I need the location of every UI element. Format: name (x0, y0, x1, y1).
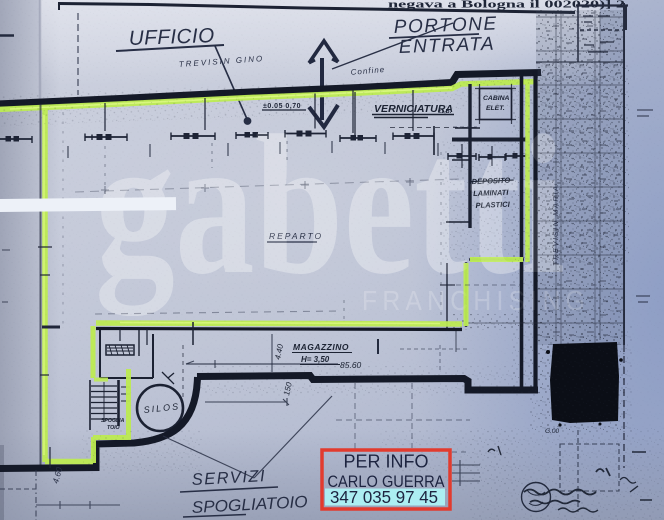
svg-text:PER INFO: PER INFO (343, 452, 428, 472)
svg-text:FRANCHISING: FRANCHISING (362, 285, 590, 316)
svg-text:347 035 97 45: 347 035 97 45 (330, 487, 438, 507)
